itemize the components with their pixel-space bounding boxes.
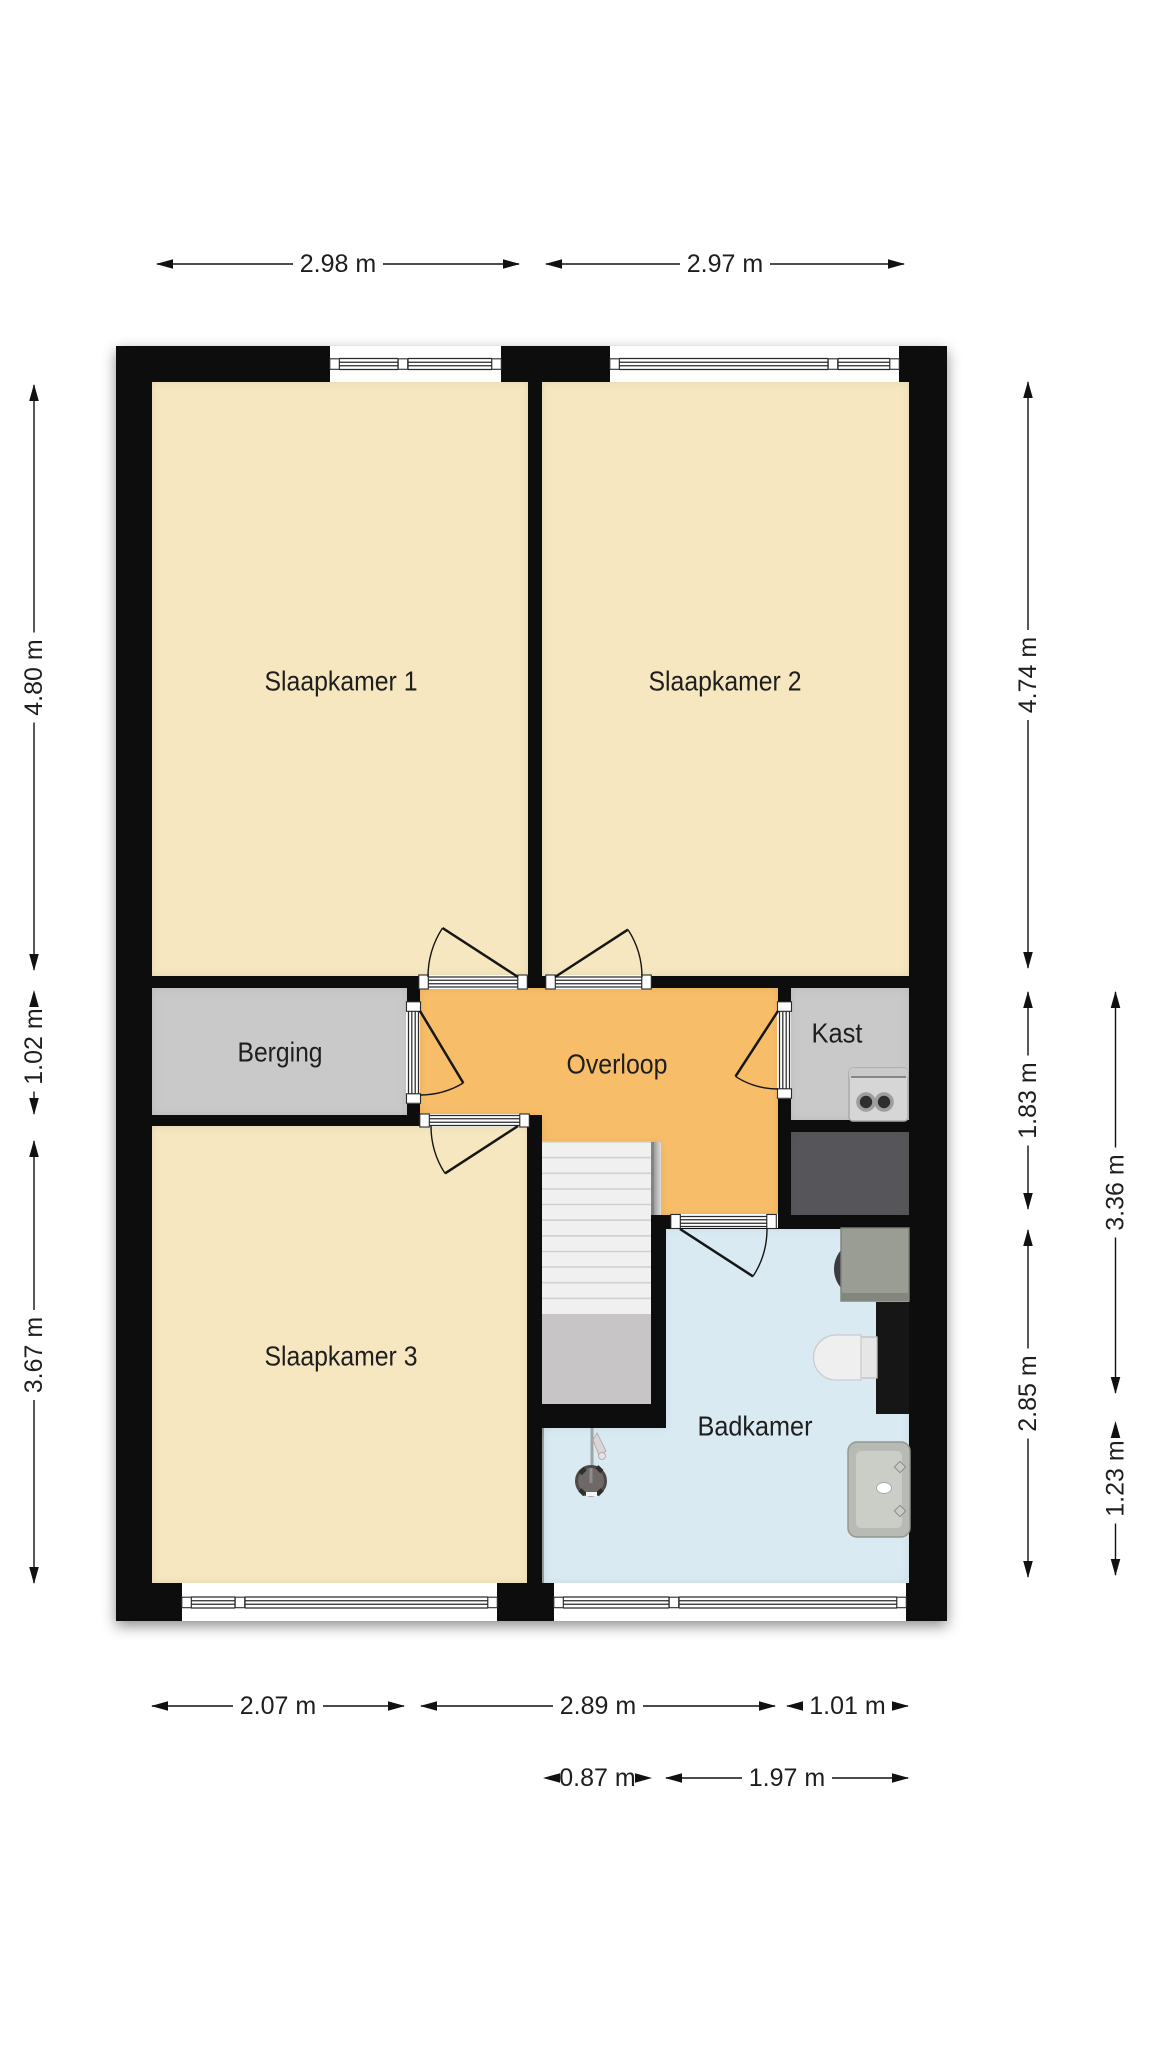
svg-text:Slaapkamer 1: Slaapkamer 1 — [265, 666, 418, 697]
svg-text:Slaapkamer 2: Slaapkamer 2 — [649, 666, 802, 697]
svg-text:2.85 m: 2.85 m — [1014, 1355, 1042, 1431]
svg-text:0.87 m: 0.87 m — [559, 1764, 635, 1792]
svg-text:Slaapkamer 3: Slaapkamer 3 — [265, 1341, 418, 1372]
svg-text:Badkamer: Badkamer — [698, 1411, 813, 1442]
svg-text:3.67 m: 3.67 m — [20, 1317, 48, 1393]
svg-text:1.02 m: 1.02 m — [20, 1008, 48, 1084]
svg-text:Berging: Berging — [238, 1037, 323, 1068]
svg-text:2.98 m: 2.98 m — [300, 250, 376, 278]
svg-text:Overloop: Overloop — [567, 1049, 668, 1080]
svg-text:3.36 m: 3.36 m — [1102, 1154, 1130, 1230]
svg-text:4.80 m: 4.80 m — [20, 639, 48, 715]
svg-text:4.74 m: 4.74 m — [1014, 637, 1042, 713]
svg-text:1.23 m: 1.23 m — [1102, 1440, 1130, 1516]
svg-text:2.89 m: 2.89 m — [560, 1692, 636, 1720]
svg-text:1.97 m: 1.97 m — [749, 1764, 825, 1792]
svg-text:2.07 m: 2.07 m — [240, 1692, 316, 1720]
svg-text:2.97 m: 2.97 m — [687, 250, 763, 278]
svg-text:1.83 m: 1.83 m — [1014, 1062, 1042, 1138]
svg-text:Kast: Kast — [812, 1018, 863, 1049]
svg-text:1.01 m: 1.01 m — [809, 1692, 885, 1720]
